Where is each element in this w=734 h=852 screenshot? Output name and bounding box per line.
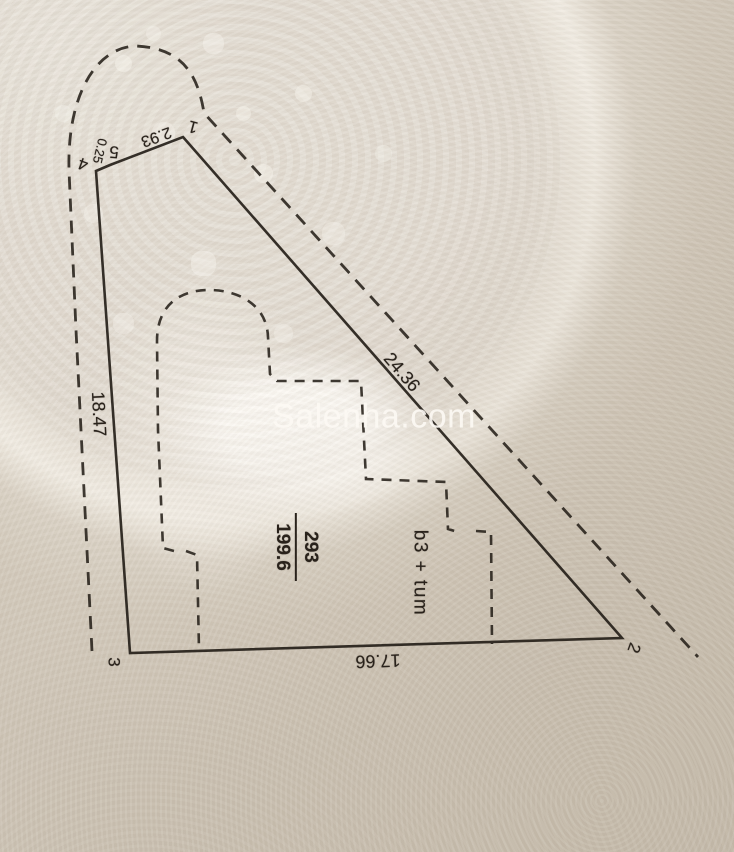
dimension-edge-2-3: 17.66	[355, 651, 401, 671]
parcel-number: 293	[299, 531, 321, 563]
building-wall-dashed-right	[476, 531, 492, 644]
watermark-text: Salenha.com	[272, 398, 476, 437]
parcel-number-area: 293 199.6	[271, 513, 321, 581]
point-label-5: 5	[109, 143, 120, 161]
building-label: b3 + tum	[411, 530, 430, 616]
fraction-line	[295, 513, 297, 581]
parcel-area: 199.6	[271, 523, 293, 571]
building-wall-dashed-left	[186, 551, 199, 650]
dimension-edge-3-4: 18.47	[89, 391, 109, 437]
parcel-boundary-line	[96, 137, 622, 653]
point-label-3: 3	[106, 657, 123, 666]
scanned-plot-survey-photo: 1 2 3 4 5 2.93 0.25 24.36 18.47 17.66 29…	[0, 0, 734, 852]
